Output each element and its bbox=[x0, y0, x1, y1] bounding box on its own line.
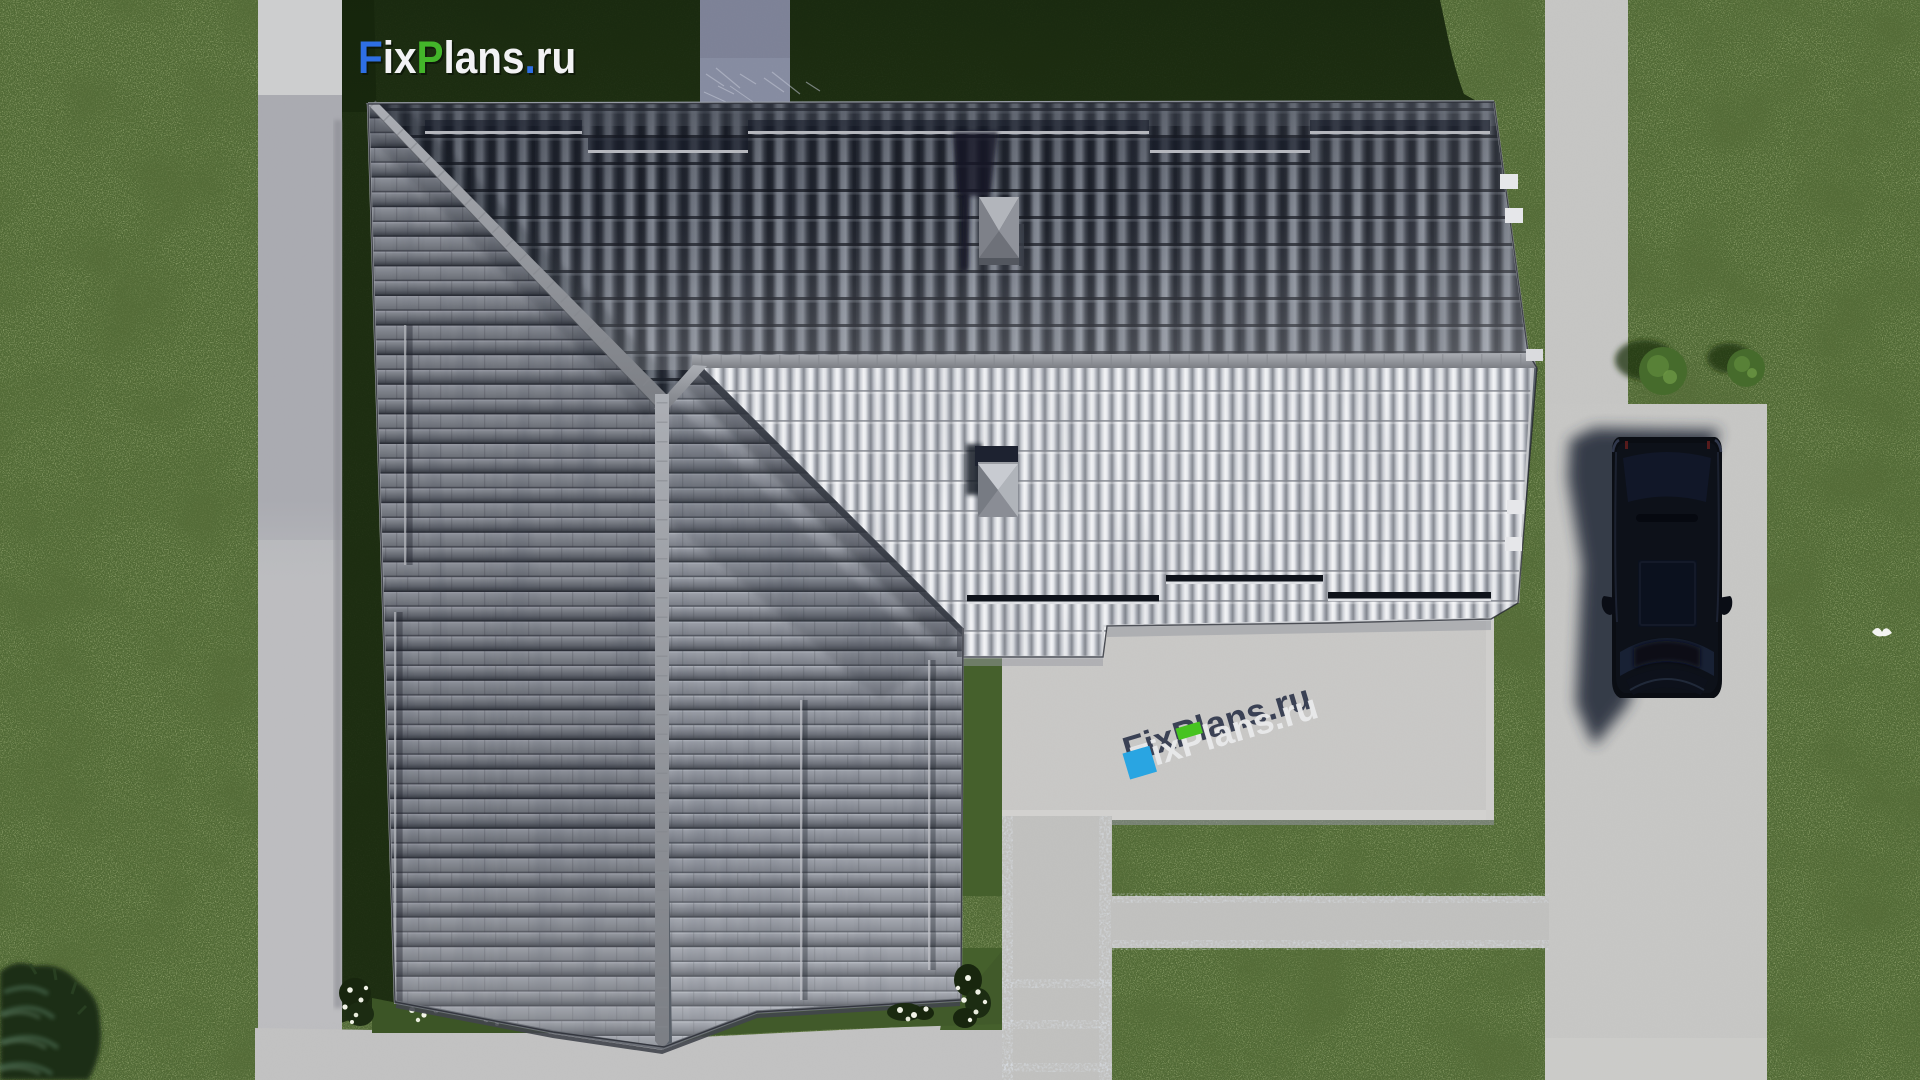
svg-text:FixPlans.ru: FixPlans.ru bbox=[358, 33, 576, 83]
